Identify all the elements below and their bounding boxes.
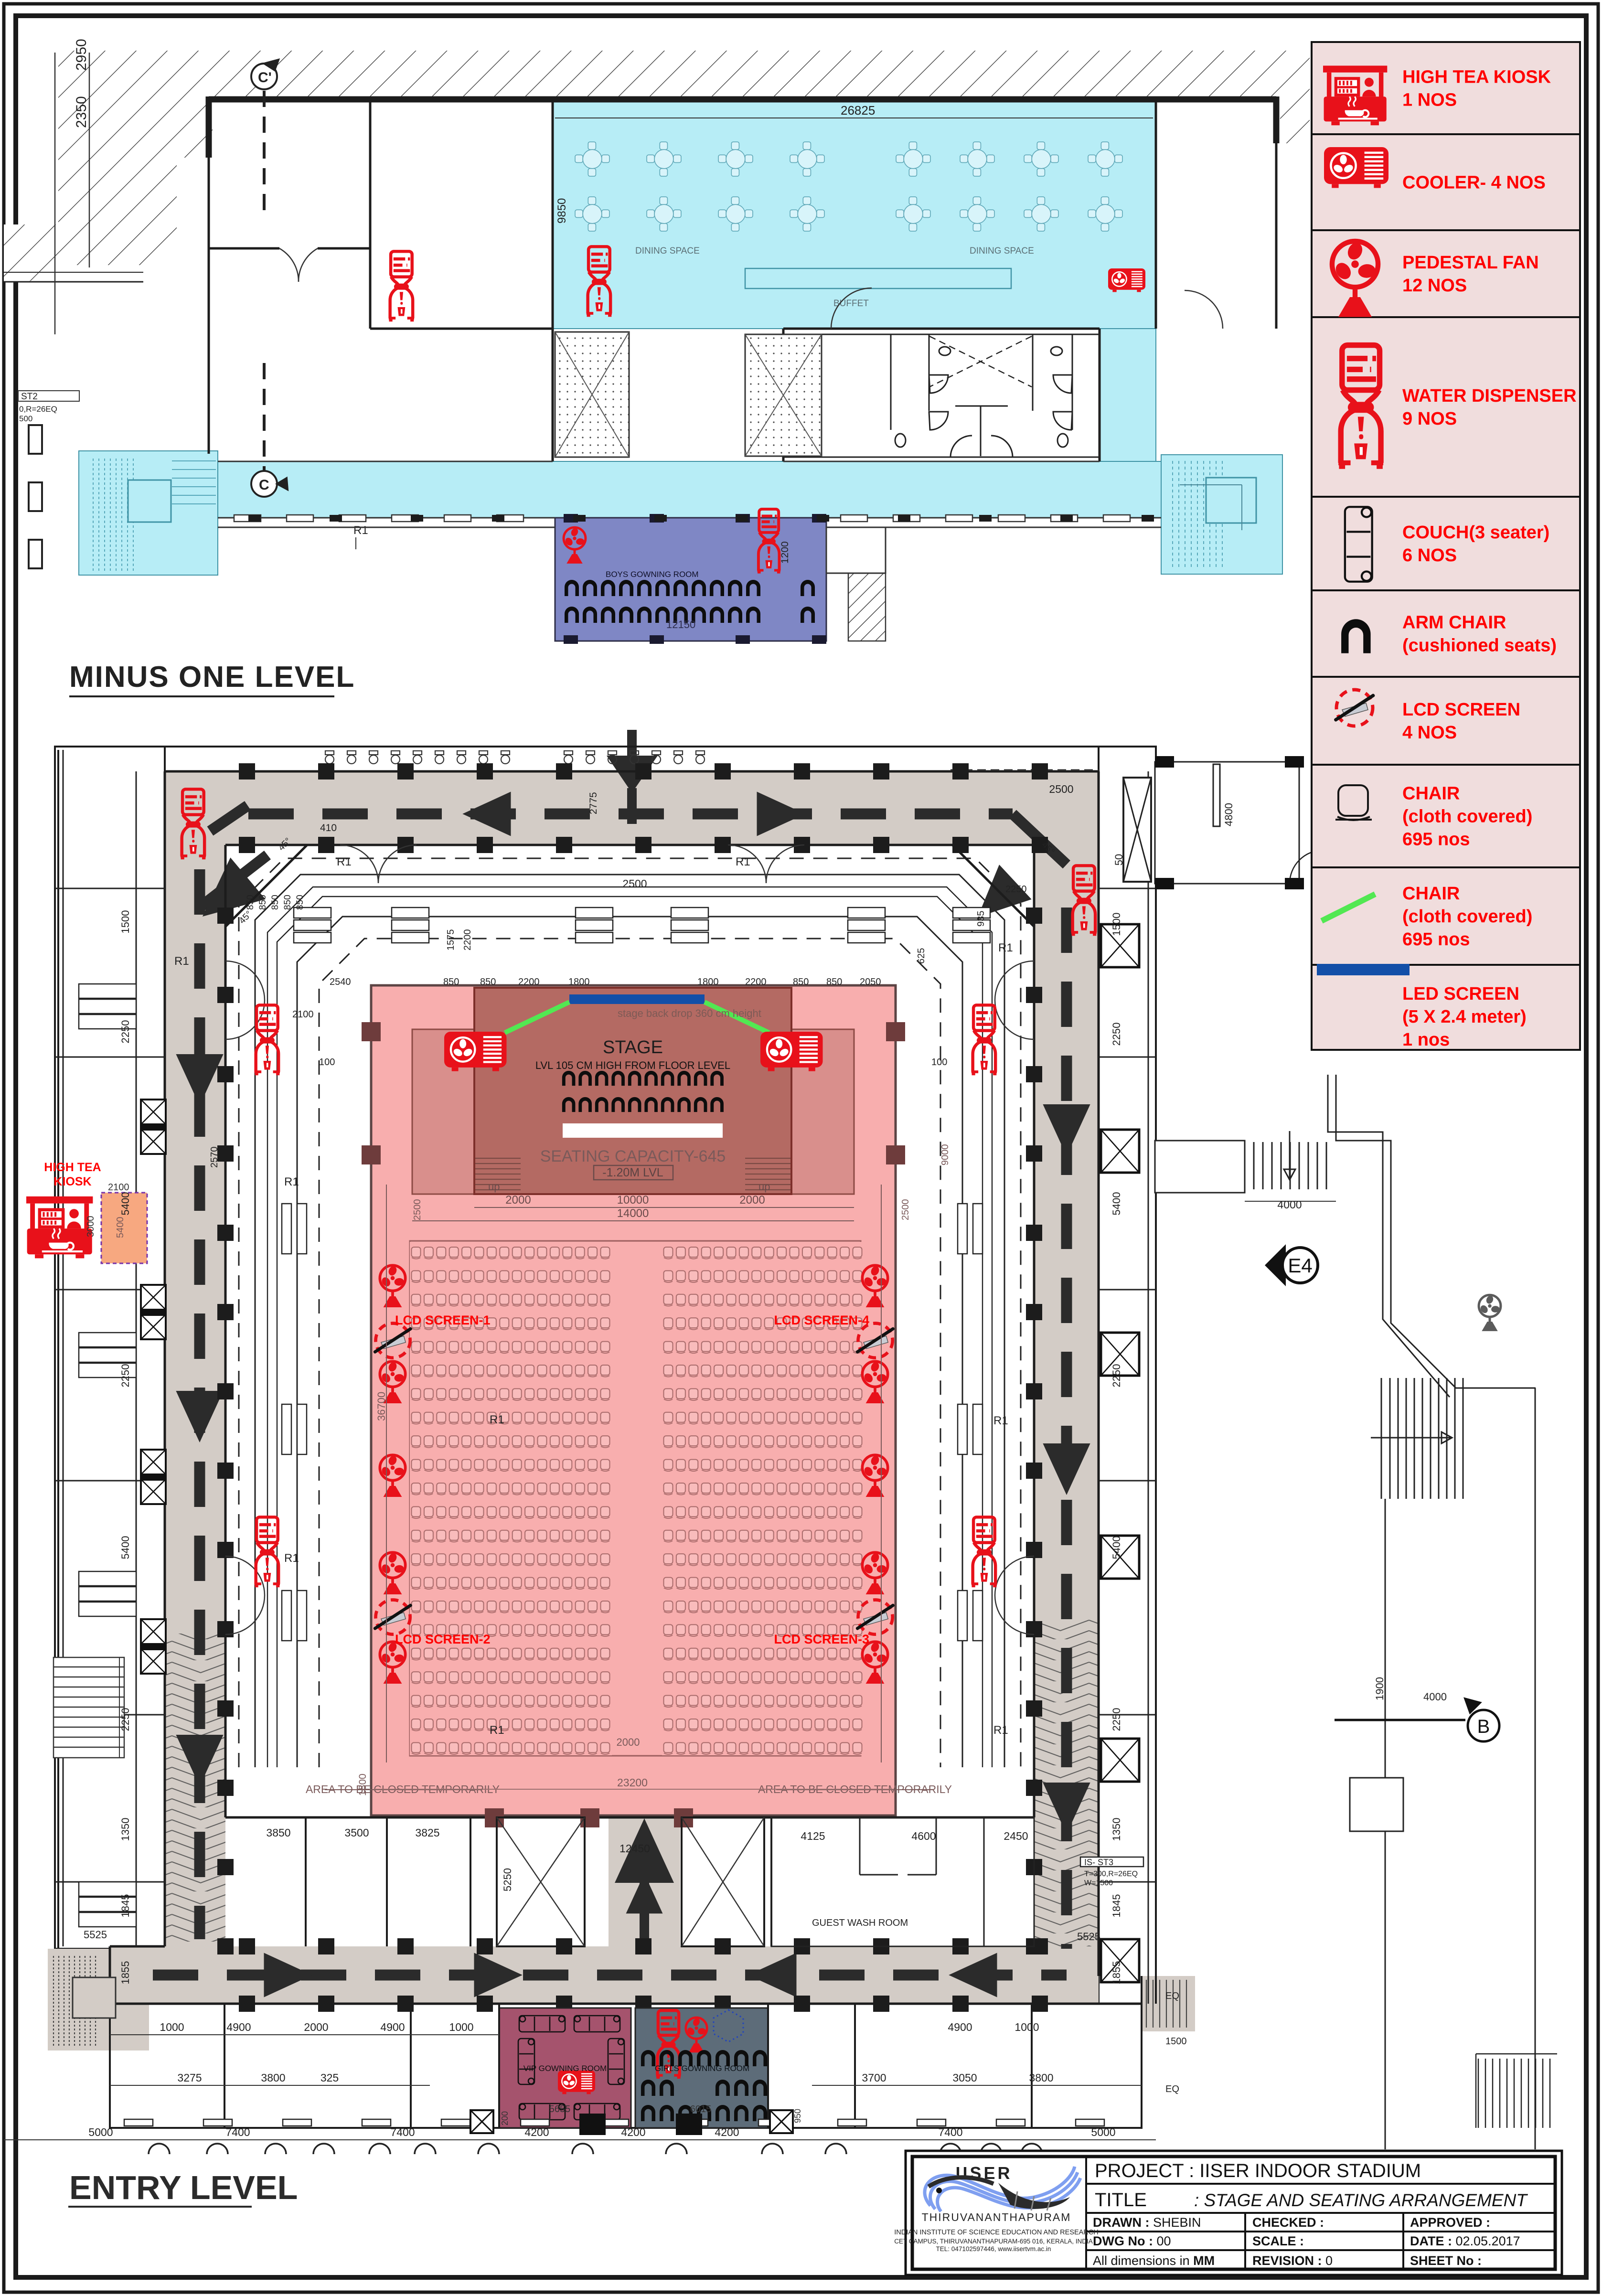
svg-text:KIOSK: KIOSK	[53, 1175, 91, 1188]
svg-text:3825: 3825	[415, 1826, 439, 1839]
svg-text:12450: 12450	[619, 1842, 650, 1855]
svg-text:1800: 1800	[568, 977, 590, 987]
svg-text:IS- ST3: IS- ST3	[1084, 1858, 1113, 1867]
svg-text:DINING SPACE: DINING SPACE	[635, 246, 700, 256]
svg-text:4900: 4900	[226, 2021, 251, 2033]
svg-text:200: 200	[500, 2111, 510, 2125]
svg-text:CHAIR: CHAIR	[1402, 884, 1460, 904]
svg-text:(cloth covered): (cloth covered)	[1402, 907, 1532, 927]
svg-text:T=300,R=26EQ: T=300,R=26EQ	[1084, 1870, 1138, 1878]
svg-text:850: 850	[793, 977, 809, 987]
svg-text:All dimensions in MM: All dimensions in MM	[1093, 2253, 1215, 2268]
svg-text:PEDESTAL FAN: PEDESTAL FAN	[1402, 253, 1539, 273]
svg-text:-1.20M LVL: -1.20M LVL	[602, 1166, 663, 1179]
svg-text:LCD SCREEN: LCD SCREEN	[1402, 700, 1520, 720]
svg-text:1200: 1200	[780, 541, 790, 564]
svg-text:4 NOS: 4 NOS	[1402, 723, 1457, 743]
svg-text:1575: 1575	[446, 929, 456, 951]
svg-text:4000: 4000	[1277, 1198, 1302, 1211]
svg-text:LCD SCREEN-2: LCD SCREEN-2	[395, 1632, 491, 1646]
svg-text:5250: 5250	[502, 1868, 513, 1891]
svg-text:1855: 1855	[119, 1961, 131, 1985]
svg-text:2000: 2000	[304, 2021, 328, 2033]
svg-text:9 NOS: 9 NOS	[1402, 409, 1457, 429]
svg-text:5400: 5400	[1111, 1536, 1122, 1559]
svg-text:2500: 2500	[412, 1199, 423, 1221]
svg-text:36700: 36700	[375, 1392, 387, 1421]
svg-text:: STAGE AND SEATING ARRANGEME: : STAGE AND SEATING ARRANGEMENT	[1194, 2190, 1528, 2210]
svg-text:HIGH TEA KIOSK: HIGH TEA KIOSK	[1402, 67, 1551, 87]
svg-text:5525: 5525	[1077, 1931, 1100, 1943]
svg-text:2250: 2250	[1111, 1023, 1122, 1046]
svg-text:14000: 14000	[617, 1207, 649, 1220]
svg-text:4200: 4200	[715, 2126, 739, 2138]
svg-text:E4: E4	[1288, 1254, 1312, 1277]
svg-text:R1: R1	[998, 941, 1013, 954]
svg-text:up: up	[758, 1181, 770, 1193]
svg-text:850: 850	[480, 977, 496, 987]
svg-text:12150: 12150	[666, 619, 695, 630]
svg-text:2100: 2100	[292, 1009, 314, 1020]
svg-text:695 nos: 695 nos	[1402, 929, 1470, 950]
svg-text:850: 850	[295, 895, 305, 910]
svg-text:TITLE: TITLE	[1095, 2189, 1147, 2211]
svg-text:ARM CHAIR: ARM CHAIR	[1402, 613, 1506, 633]
svg-text:2200: 2200	[462, 929, 473, 951]
svg-text:4125: 4125	[801, 1830, 825, 1842]
svg-text:5400: 5400	[1111, 1192, 1122, 1216]
svg-text:2200: 2200	[518, 977, 540, 987]
svg-text:C': C'	[258, 70, 272, 85]
svg-text:C: C	[259, 477, 269, 493]
svg-text:7400: 7400	[938, 2126, 962, 2138]
svg-text:2540: 2540	[330, 977, 351, 987]
svg-text:2250: 2250	[1005, 884, 1027, 895]
svg-text:2950: 2950	[74, 39, 89, 71]
svg-text:up: up	[488, 1181, 500, 1193]
svg-text:2050: 2050	[860, 977, 881, 987]
svg-text:2350: 2350	[74, 96, 89, 128]
svg-text:26825: 26825	[841, 103, 875, 117]
svg-text:2500: 2500	[1049, 783, 1073, 795]
svg-text:BUFFET: BUFFET	[833, 299, 869, 309]
svg-text:LVL 105 CM HIGH FROM FLOOR LEV: LVL 105 CM HIGH FROM FLOOR LEVEL	[535, 1059, 730, 1071]
svg-text:23200: 23200	[617, 1776, 648, 1789]
svg-text:0,R=26EQ: 0,R=26EQ	[19, 405, 57, 414]
svg-text:W=1500: W=1500	[1084, 1879, 1113, 1887]
svg-text:1000: 1000	[449, 2021, 473, 2033]
svg-text:1500: 1500	[1165, 2036, 1187, 2047]
svg-text:R1: R1	[993, 1724, 1008, 1737]
svg-text:2200: 2200	[745, 977, 767, 987]
svg-text:DRAWN : SHEBIN: DRAWN : SHEBIN	[1093, 2215, 1201, 2230]
svg-text:1500: 1500	[1111, 913, 1122, 936]
svg-text:5525: 5525	[84, 1929, 107, 1941]
svg-text:5655: 5655	[549, 2104, 571, 2114]
svg-text:850: 850	[826, 977, 842, 987]
svg-text:5000: 5000	[88, 2126, 113, 2138]
svg-text:2250: 2250	[119, 1708, 131, 1731]
svg-text:410: 410	[320, 822, 337, 833]
svg-text:4900: 4900	[948, 2021, 972, 2033]
svg-text:5400: 5400	[119, 1536, 131, 1559]
svg-text:EQ: EQ	[1165, 1991, 1179, 2001]
svg-text:9000: 9000	[940, 1144, 951, 1166]
svg-text:6015: 6015	[690, 2104, 712, 2114]
svg-text:3000: 3000	[85, 1216, 96, 1238]
svg-text:APPROVED :: APPROVED :	[1410, 2215, 1490, 2230]
svg-text:7400: 7400	[390, 2126, 415, 2138]
svg-text:2000: 2000	[617, 1736, 640, 1748]
svg-text:CHECKED :: CHECKED :	[1252, 2215, 1324, 2230]
svg-text:4200: 4200	[524, 2126, 549, 2138]
svg-text:CHAIR: CHAIR	[1402, 784, 1460, 804]
svg-text:4600: 4600	[911, 1830, 936, 1842]
svg-text:5400: 5400	[119, 1192, 131, 1216]
svg-text:R1: R1	[174, 955, 189, 968]
svg-text:500: 500	[19, 414, 32, 423]
svg-text:12 NOS: 12 NOS	[1402, 276, 1467, 296]
svg-text:COOLER- 4 NOS: COOLER- 4 NOS	[1402, 173, 1546, 193]
svg-text:695 nos: 695 nos	[1402, 830, 1470, 850]
svg-text:935: 935	[976, 911, 986, 927]
svg-text:1350: 1350	[119, 1818, 131, 1841]
svg-text:LED SCREEN: LED SCREEN	[1402, 984, 1519, 1004]
svg-text:BOYS GOWNING ROOM: BOYS GOWNING ROOM	[606, 570, 699, 579]
svg-text:1800: 1800	[697, 977, 719, 987]
svg-text:5400: 5400	[115, 1217, 126, 1239]
svg-text:625: 625	[916, 948, 927, 964]
svg-text:7400: 7400	[225, 2126, 250, 2138]
svg-text:REVISION : 0: REVISION : 0	[1252, 2253, 1333, 2268]
svg-text:R1: R1	[736, 855, 750, 868]
svg-text:3800: 3800	[1029, 2072, 1053, 2084]
svg-text:2775: 2775	[588, 792, 599, 814]
svg-text:1845: 1845	[119, 1894, 131, 1918]
svg-text:(cushioned seats): (cushioned seats)	[1402, 636, 1557, 656]
svg-text:stage back drop 360 cm height: stage back drop 360 cm height	[618, 1007, 761, 1019]
svg-text:1845: 1845	[1111, 1894, 1122, 1918]
svg-text:TEL: 047102597446, www.iisertv: TEL: 047102597446, www.iisertvm.ac.in	[936, 2245, 1051, 2253]
svg-text:3800: 3800	[261, 2072, 285, 2084]
svg-text:2570: 2570	[209, 1147, 220, 1168]
svg-text:100: 100	[931, 1057, 947, 1068]
svg-text:INDIAN INSTITUTE OF SCIENCE ED: INDIAN INSTITUTE OF SCIENCE EDUCATION AN…	[894, 2229, 1099, 2236]
svg-text:2000: 2000	[505, 1194, 531, 1207]
svg-text:2250: 2250	[119, 1020, 131, 1044]
svg-text:R1: R1	[993, 1414, 1008, 1427]
svg-text:3500: 3500	[344, 1826, 369, 1839]
svg-text:2500: 2500	[900, 1199, 911, 1221]
svg-text:4200: 4200	[621, 2126, 645, 2138]
svg-text:SHEET No :: SHEET No :	[1410, 2253, 1482, 2268]
svg-text:1900: 1900	[1374, 1677, 1386, 1700]
svg-text:850: 850	[246, 895, 256, 910]
svg-text:2450: 2450	[1004, 1830, 1028, 1842]
svg-text:850: 850	[258, 895, 268, 910]
svg-text:3700: 3700	[862, 2072, 886, 2084]
svg-text:EQ: EQ	[1165, 2084, 1179, 2094]
svg-text:100: 100	[319, 1057, 335, 1068]
svg-text:R1: R1	[284, 1175, 299, 1188]
svg-text:SCALE :: SCALE :	[1252, 2234, 1304, 2248]
svg-text:GUEST WASH ROOM: GUEST WASH ROOM	[812, 1918, 908, 1928]
svg-text:4900: 4900	[380, 2021, 405, 2033]
svg-text:ST2: ST2	[21, 392, 38, 402]
svg-text:2250: 2250	[1111, 1708, 1122, 1731]
svg-text:LCD SCREEN-1: LCD SCREEN-1	[395, 1313, 491, 1327]
svg-text:9850: 9850	[555, 198, 568, 224]
svg-text:R1: R1	[337, 855, 352, 868]
svg-text:DATE : 02.05.2017: DATE : 02.05.2017	[1410, 2234, 1520, 2248]
svg-text:1000: 1000	[1015, 2021, 1039, 2033]
svg-text:COUCH(3 seater): COUCH(3 seater)	[1402, 523, 1549, 543]
svg-text:STAGE: STAGE	[603, 1037, 663, 1057]
svg-text:10000: 10000	[617, 1194, 649, 1207]
svg-text:LCD SCREEN-4: LCD SCREEN-4	[774, 1313, 869, 1327]
svg-text:MINUS ONE LEVEL: MINUS ONE LEVEL	[69, 661, 355, 694]
svg-text:B: B	[1477, 1716, 1490, 1737]
svg-text:ENTRY LEVEL: ENTRY LEVEL	[69, 2169, 298, 2206]
svg-text:PROJECT : IISER INDOOR STADIU: PROJECT : IISER INDOOR STADIUM	[1095, 2160, 1421, 2181]
svg-text:325: 325	[320, 2072, 339, 2084]
svg-text:5000: 5000	[1091, 2126, 1115, 2138]
svg-text:WATER DISPENSER: WATER DISPENSER	[1402, 386, 1577, 406]
svg-text:2000: 2000	[739, 1194, 765, 1207]
svg-text:LCD SCREEN-3: LCD SCREEN-3	[774, 1632, 869, 1646]
svg-text:VIP GOWNING ROOM: VIP GOWNING ROOM	[523, 2064, 607, 2073]
svg-text:1 NOS: 1 NOS	[1402, 90, 1457, 110]
svg-text:1855: 1855	[1111, 1961, 1122, 1985]
svg-text:3275: 3275	[177, 2072, 202, 2084]
svg-text:R1: R1	[490, 1413, 504, 1426]
svg-text:4800: 4800	[1223, 803, 1235, 826]
svg-text:1000: 1000	[160, 2021, 184, 2033]
svg-text:R1: R1	[353, 524, 368, 537]
svg-text:2250: 2250	[119, 1364, 131, 1388]
svg-text:2100: 2100	[108, 1182, 129, 1193]
svg-text:(5 X 2.4 meter): (5 X 2.4 meter)	[1402, 1007, 1527, 1027]
svg-text:2500: 2500	[622, 877, 647, 890]
svg-text:SEATING CAPACITY-645: SEATING CAPACITY-645	[540, 1147, 726, 1165]
svg-text:1 nos: 1 nos	[1402, 1030, 1450, 1050]
svg-text:6 NOS: 6 NOS	[1402, 545, 1457, 566]
svg-text:1800: 1800	[357, 1773, 368, 1796]
svg-text:DWG No : 00: DWG No : 00	[1093, 2234, 1171, 2248]
svg-text:DINING SPACE: DINING SPACE	[970, 246, 1034, 256]
svg-text:R1: R1	[490, 1724, 504, 1737]
svg-text:850: 850	[270, 895, 280, 910]
svg-text:1500: 1500	[119, 910, 131, 934]
svg-text:950: 950	[793, 2109, 802, 2123]
svg-text:1350: 1350	[1111, 1818, 1122, 1841]
svg-text:3050: 3050	[952, 2072, 977, 2084]
svg-text:850: 850	[283, 895, 293, 910]
svg-text:CET CAMPUS, THIRUVANANTHAPURAM: CET CAMPUS, THIRUVANANTHAPURAM-695 016, …	[894, 2238, 1093, 2245]
svg-text:HIGH TEA: HIGH TEA	[44, 1161, 101, 1174]
svg-text:THIRUVANANTHAPURAM: THIRUVANANTHAPURAM	[922, 2211, 1071, 2223]
svg-text:3850: 3850	[266, 1826, 290, 1839]
svg-text:850: 850	[443, 977, 459, 987]
svg-text:4000: 4000	[1423, 1691, 1447, 1703]
svg-text:R1: R1	[284, 1552, 299, 1565]
svg-text:(cloth covered): (cloth covered)	[1402, 807, 1532, 827]
svg-text:2250: 2250	[1111, 1364, 1122, 1388]
